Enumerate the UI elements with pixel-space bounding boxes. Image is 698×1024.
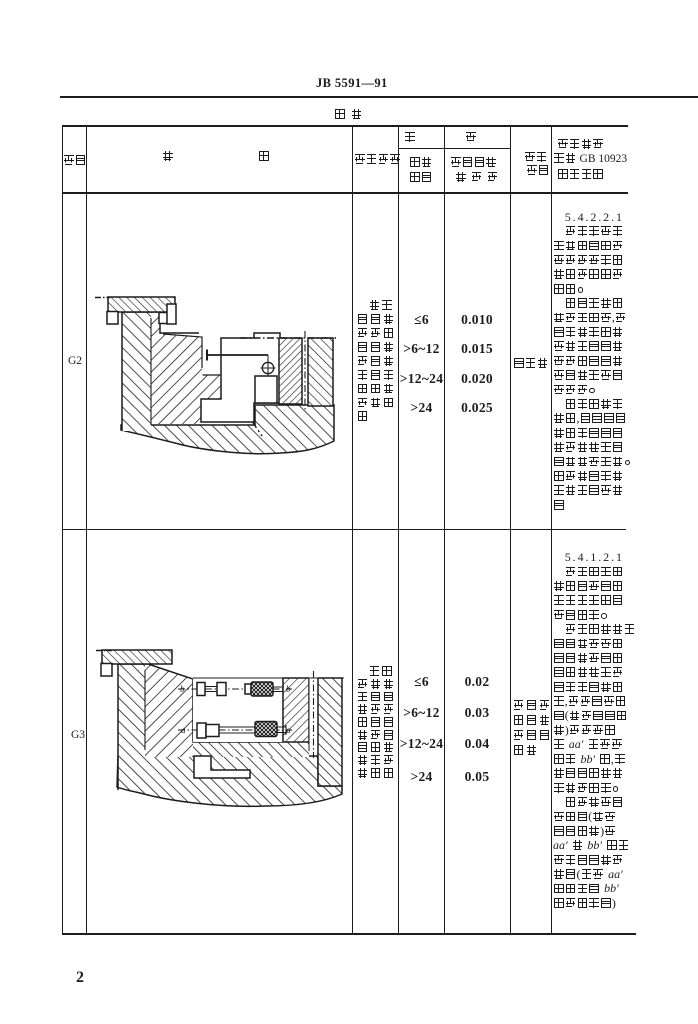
svg-text:b: b xyxy=(180,684,185,694)
svg-text:a: a xyxy=(286,725,291,735)
svg-text:b: b xyxy=(286,684,291,694)
svg-text:a: a xyxy=(181,725,186,735)
